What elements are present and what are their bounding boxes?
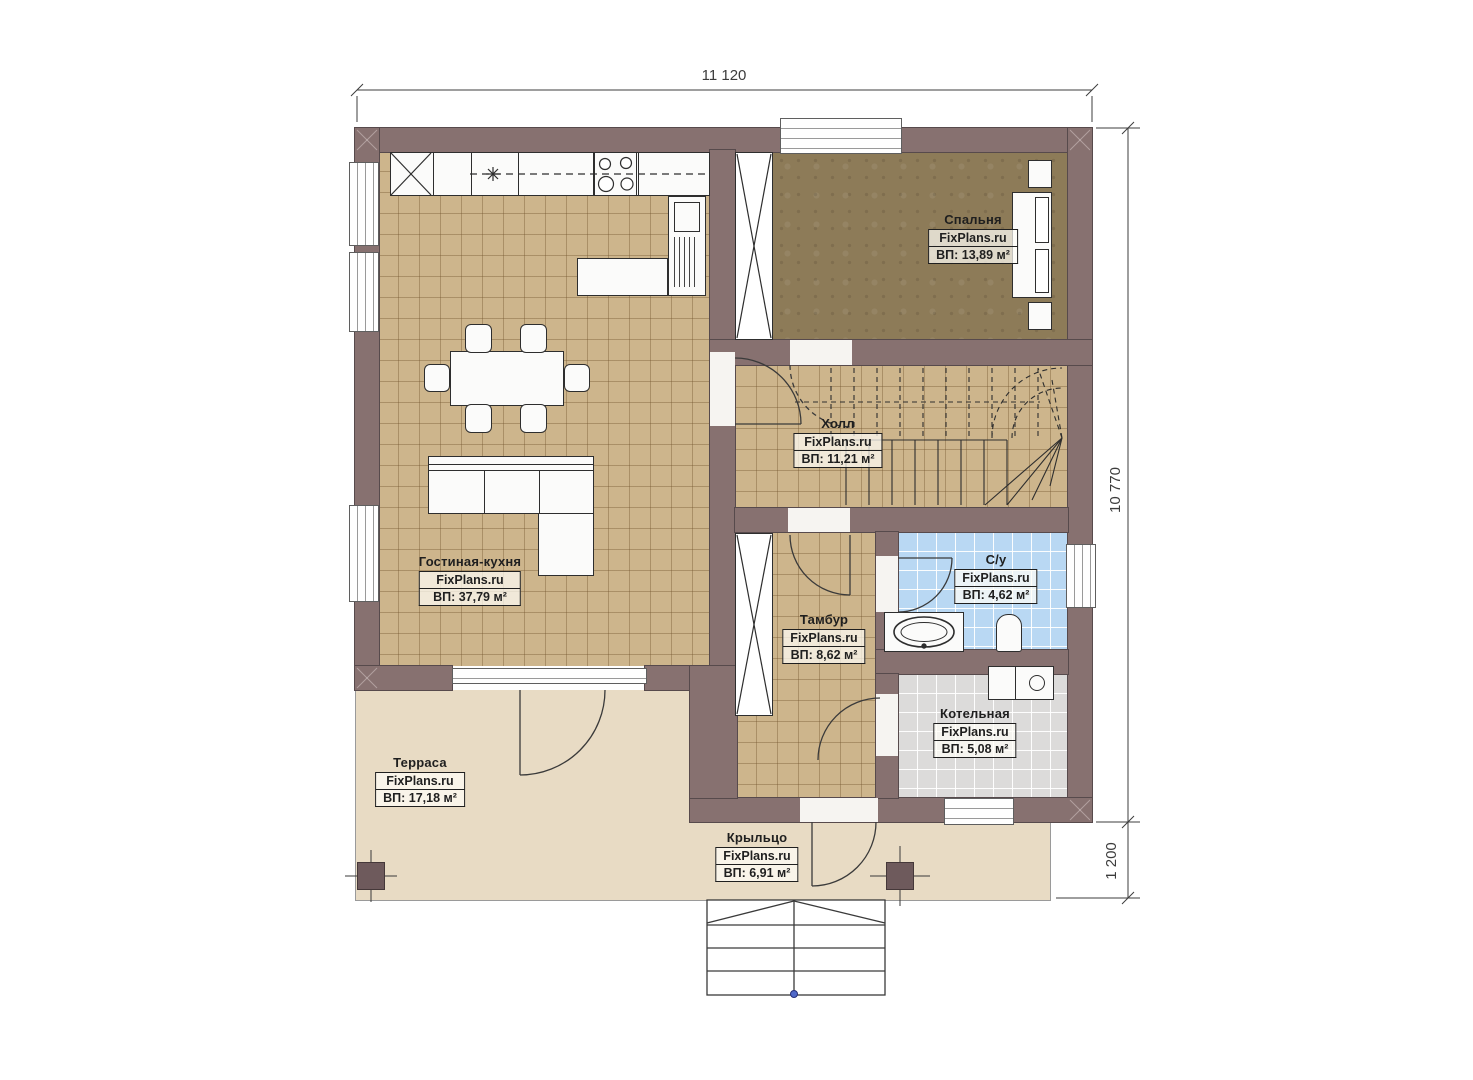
porch-column (886, 862, 914, 890)
sofa-back-line (429, 470, 593, 471)
entry-point-dot (791, 991, 798, 998)
room-label-living: Гостиная-кухня FixPlans.ru ВП: 37,79 м² (419, 554, 521, 606)
chair (520, 404, 547, 433)
wall-living-south-left (355, 666, 452, 690)
boiler-unit (988, 666, 1054, 700)
wall-hall-vestibule (735, 508, 1068, 532)
toilet (996, 614, 1022, 652)
stove (593, 152, 637, 196)
pillow (1035, 249, 1049, 293)
room-name: Котельная (933, 706, 1016, 721)
counter-divider (638, 153, 639, 195)
room-area: ВП: 17,18 м² (375, 790, 465, 807)
room-area: ВП: 37,79 м² (419, 589, 521, 606)
room-name: Спальня (928, 212, 1018, 227)
watermark: FixPlans.ru (375, 772, 465, 790)
watermark: FixPlans.ru (928, 229, 1018, 247)
window-top-bedroom (780, 118, 902, 154)
window-bathroom (1066, 544, 1096, 608)
room-name: Крыльцо (715, 830, 798, 845)
dimension-right-label: 10 770 (1107, 467, 1124, 513)
chair (520, 324, 547, 353)
hall-vestibule-opening (788, 508, 850, 532)
hall-floor (735, 365, 1068, 508)
room-label-vestibule: Тамбур FixPlans.ru ВП: 8,62 м² (782, 612, 865, 664)
shaft-upper (735, 152, 773, 340)
fridge-icon (674, 202, 700, 232)
room-name: Терраса (375, 755, 465, 770)
chair (564, 364, 590, 392)
watermark: FixPlans.ru (954, 569, 1037, 587)
room-area: ВП: 8,62 м² (782, 647, 865, 664)
room-area: ВП: 11,21 м² (793, 451, 882, 468)
vent-grille-icon (674, 237, 699, 287)
wall-bottom (690, 798, 1092, 822)
room-name: Тамбур (782, 612, 865, 627)
boiler-burner-icon (1029, 675, 1045, 691)
counter-divider (518, 153, 519, 195)
bedroom-door-opening (790, 340, 852, 365)
room-name: Холл (793, 416, 882, 431)
sofa-seat-divider (539, 470, 540, 513)
room-name: С/у (954, 552, 1037, 567)
room-label-porch: Крыльцо FixPlans.ru ВП: 6,91 м² (715, 830, 798, 882)
terrace-column (357, 862, 385, 890)
sofa-seat-divider (484, 470, 485, 513)
wall-bedroom-hall (710, 340, 1092, 365)
sofa-body (428, 456, 594, 514)
room-label-bedroom: Спальня FixPlans.ru ВП: 13,89 м² (928, 212, 1018, 264)
hall-door-opening (710, 352, 735, 426)
counter-divider (471, 153, 472, 195)
vestibule-boiler-opening (876, 694, 898, 756)
entry-door-opening (800, 798, 878, 822)
room-label-hall: Холл FixPlans.ru ВП: 11,21 м² (793, 416, 882, 468)
fridge-unit (668, 196, 706, 296)
window-left-3 (349, 505, 379, 602)
room-label-terrace: Терраса FixPlans.ru ВП: 17,18 м² (375, 755, 465, 807)
watermark: FixPlans.ru (715, 847, 798, 865)
sofa-back-line (429, 464, 593, 465)
kitchen-counter (390, 152, 710, 196)
bed (1012, 192, 1052, 298)
room-area: ВП: 4,62 м² (954, 587, 1037, 604)
window-boiler (944, 798, 1014, 825)
watermark: FixPlans.ru (419, 571, 521, 589)
entrance-steps (707, 900, 885, 998)
boiler-divider (1015, 667, 1016, 699)
window-left-2 (349, 252, 379, 332)
wall-vestibule-left (690, 666, 737, 798)
wall-top (355, 128, 1092, 152)
room-area: ВП: 5,08 м² (933, 741, 1016, 758)
chair (465, 404, 492, 433)
watermark: FixPlans.ru (933, 723, 1016, 741)
shaft-lower (735, 533, 773, 716)
window-left-1 (349, 162, 379, 246)
kitchen-peninsula (577, 258, 668, 296)
dimension-right-lower-label: 1 200 (1103, 842, 1120, 880)
dining-table (450, 351, 564, 406)
room-area: ВП: 13,89 м² (928, 247, 1018, 264)
watermark: FixPlans.ru (782, 629, 865, 647)
vestibule-bath-opening (876, 556, 898, 612)
dimension-top-label: 11 120 (702, 67, 747, 84)
room-label-bathroom: С/у FixPlans.ru ВП: 4,62 м² (954, 552, 1037, 604)
counter-divider (433, 153, 434, 195)
chair (424, 364, 450, 392)
room-name: Гостиная-кухня (419, 554, 521, 569)
wall-right (1068, 128, 1092, 822)
chair (465, 324, 492, 353)
room-area: ВП: 6,91 м² (715, 865, 798, 882)
nightstand (1028, 302, 1052, 330)
room-label-boiler: Котельная FixPlans.ru ВП: 5,08 м² (933, 706, 1016, 758)
floor-plan: 11 120 10 770 1 200 Гостиная-кухня FixPl… (0, 0, 1473, 1080)
sink-counter (884, 612, 964, 652)
pillow (1035, 197, 1049, 243)
watermark: FixPlans.ru (793, 433, 882, 451)
nightstand (1028, 160, 1052, 188)
terrace-glass-door (452, 668, 647, 684)
